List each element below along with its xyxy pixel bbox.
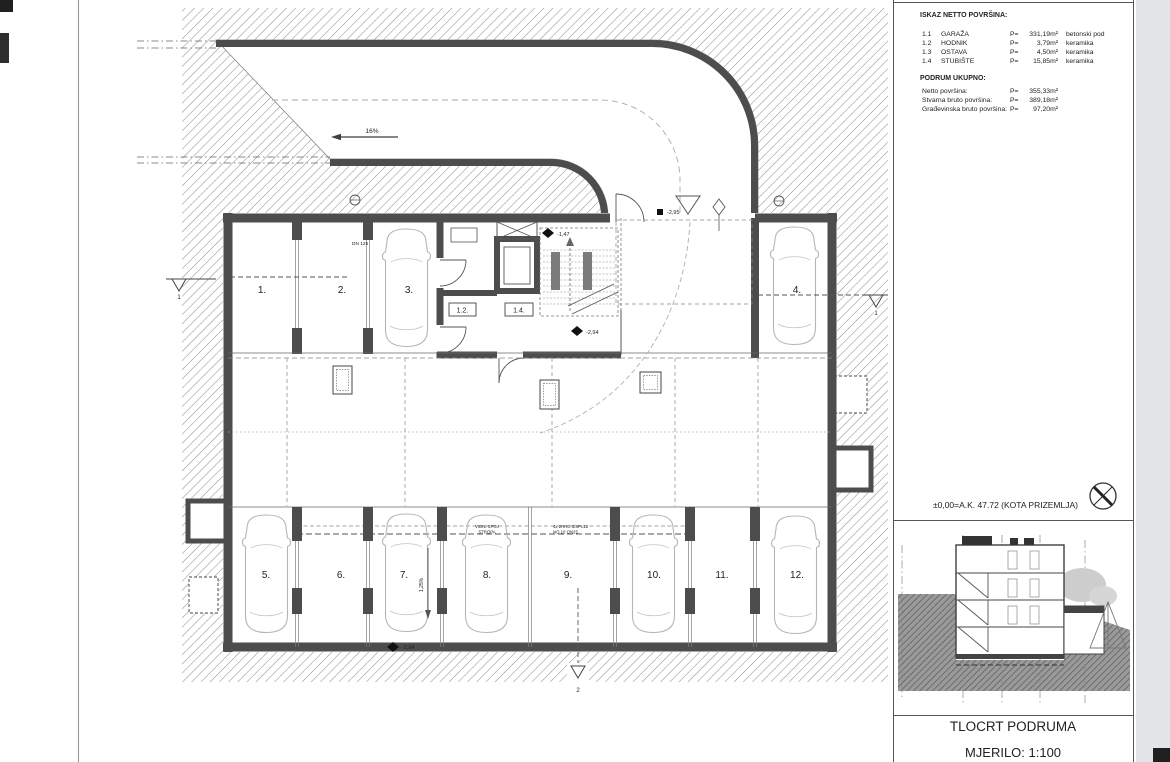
row-finish: keramika <box>1066 49 1094 56</box>
drawing-scale: MJERILO: 1:100 <box>965 745 1061 760</box>
floor-plan-drawing: 16% <box>0 0 1170 762</box>
row-area: 3,79m² <box>1037 40 1059 47</box>
total-p: P= <box>1010 106 1019 113</box>
drawing-title: TLOCRT PODRUMA <box>950 719 1076 734</box>
total-value: 389,18m² <box>1029 97 1058 104</box>
row-p: P= <box>1010 40 1019 47</box>
level-entry: -2,95 <box>667 210 680 216</box>
level-floor: -2,94 <box>402 645 415 651</box>
total-p: P= <box>1010 88 1019 95</box>
row-finish: keramika <box>1066 58 1094 65</box>
total-p: P= <box>1010 97 1019 104</box>
row-no: 1.4 <box>922 58 932 65</box>
tree <box>1089 586 1117 606</box>
ceiling-note-1-line1: VIDNI SPOJ <box>475 524 499 529</box>
architectural-drawing-page: 16% <box>0 0 1170 762</box>
parking-spot-label-3: 3. <box>405 285 413 296</box>
parking-spot-label-5: 5. <box>262 570 270 581</box>
total-value: 355,33m² <box>1029 88 1058 95</box>
row-no: 1.1 <box>922 31 932 38</box>
row-p: P= <box>1010 49 1019 56</box>
row-name: STUBIŠTE <box>941 56 975 65</box>
scan-artifact <box>0 0 13 12</box>
parking-spot-label-10: 10. <box>647 570 661 581</box>
scan-artifact <box>0 33 9 63</box>
pipe-label: DN 125 <box>352 241 369 247</box>
level-stair-mid: -1,47 <box>557 232 570 238</box>
parking-spot-label-8: 8. <box>483 570 491 581</box>
total-value: 97,20m² <box>1033 106 1059 113</box>
total-label: Stvarna bruto površina: <box>922 97 992 104</box>
row-name: GARAŽA <box>941 29 969 38</box>
parking-spot-label-7: 7. <box>400 570 408 581</box>
outside-sheet-area <box>1136 0 1170 762</box>
totals-header: PODRUM UKUPNO: <box>920 75 986 82</box>
parking-spot-label-11: 11. <box>715 570 728 581</box>
ceiling-note-1-line2: STROPA <box>478 530 495 535</box>
row-area: 15,85m² <box>1033 58 1059 65</box>
row-finish: betonski pod <box>1066 31 1105 38</box>
total-label: Netto površina: <box>922 88 968 95</box>
parking-spot-label-1: 1. <box>258 285 266 296</box>
ramp-slope-label: 16% <box>365 128 378 135</box>
row-no: 1.2 <box>922 40 932 47</box>
datum-level-note: ±0,00=A.K. 47.72 (KOTA PRIZEMLJA) <box>933 500 1078 510</box>
row-p: P= <box>1010 31 1019 38</box>
floor-slope-label: 1,25% <box>419 577 425 592</box>
room-label-stubiste: 1.4. <box>513 308 525 315</box>
ceiling-note-2-line2: NO 10 ON25 <box>553 530 578 535</box>
level-stair-low: -2,94 <box>586 330 599 336</box>
area-table-header: ISKAZ NETTO POVRŠINA: <box>920 10 1007 19</box>
room-label-hodnik: 1.2. <box>457 308 469 315</box>
row-finish: keramika <box>1066 40 1094 47</box>
parking-spot-label-6: 6. <box>337 570 345 581</box>
parking-spot-label-12: 12. <box>790 570 804 581</box>
row-no: 1.3 <box>922 49 932 56</box>
parking-spot-label-9: 9. <box>564 570 572 581</box>
parking-spot-label-4: 4. <box>793 285 801 296</box>
row-p: P= <box>1010 58 1019 65</box>
parking-spot-label-2: 2. <box>338 285 346 296</box>
row-area: 4,50m² <box>1037 49 1059 56</box>
row-name: HODNIK <box>941 40 968 47</box>
total-label: Građevinska bruto površina: <box>922 106 1007 113</box>
row-name: OSTAVA <box>941 49 968 56</box>
ceiling-note-2-line1: 4x 2RHD 3/SPL12 <box>553 524 589 529</box>
scan-artifact <box>1153 748 1170 762</box>
row-area: 331,19m² <box>1029 31 1058 38</box>
